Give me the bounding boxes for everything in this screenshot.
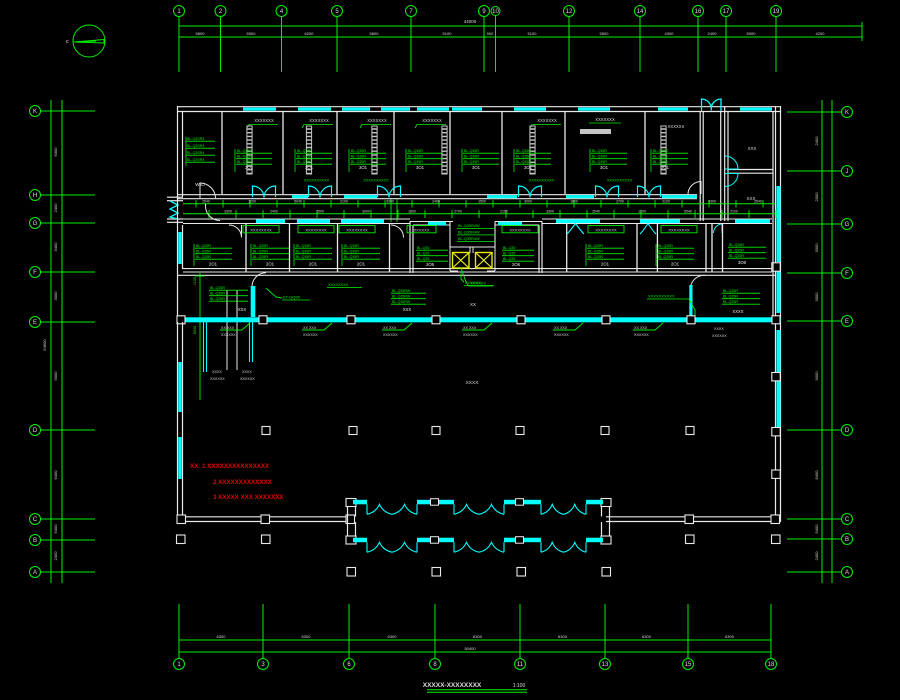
svg-text:2400: 2400 (53, 203, 58, 213)
svg-text:3300: 3300 (708, 200, 716, 204)
svg-text:44000: 44000 (464, 19, 477, 24)
svg-text:BL-Q35R: BL-Q35R (237, 155, 252, 159)
svg-text:4200: 4200 (816, 31, 826, 36)
svg-text:XXXXXX: XXXXXX (465, 280, 481, 285)
svg-text:2100: 2100 (662, 200, 670, 204)
svg-text:6300: 6300 (302, 634, 312, 639)
svg-text:3O8: 3O8 (738, 260, 747, 265)
svg-text:K: K (33, 109, 37, 115)
svg-text:1:100: 1:100 (513, 683, 526, 689)
svg-text:BL-Q35R: BL-Q35R (408, 160, 423, 164)
svg-text:XXXXXX: XXXXXX (210, 377, 225, 381)
svg-text:BL-Q35RW: BL-Q35RW (392, 295, 411, 299)
svg-text:A: A (845, 570, 849, 576)
svg-text:BL-Q35R: BL-Q35R (253, 255, 268, 259)
svg-text:1500: 1500 (478, 200, 486, 204)
svg-text:BL-Q35R: BL-Q35R (729, 254, 744, 258)
svg-text:12: 12 (566, 9, 573, 15)
svg-text:2700: 2700 (616, 200, 624, 204)
svg-text:BL-Q35R: BL-Q35R (253, 244, 268, 248)
svg-text:2100: 2100 (340, 200, 348, 204)
svg-text:3O1: 3O1 (472, 165, 481, 170)
svg-text:BL-Q35R: BL-Q35R (296, 255, 311, 259)
svg-text:BL-Q35R: BL-Q35R (464, 149, 479, 153)
svg-text:E: E (33, 320, 37, 326)
svg-text:10: 10 (492, 9, 499, 15)
svg-text:2540: 2540 (754, 200, 762, 204)
svg-text:3300: 3300 (386, 200, 394, 204)
svg-text:BL-Q35R: BL-Q35R (297, 149, 312, 153)
svg-text:XXXXXX: XXXXXX (668, 124, 685, 129)
svg-text:XXXXXX: XXXXXX (383, 333, 398, 337)
svg-text:3300: 3300 (546, 210, 554, 214)
svg-text:BL-Q35R: BL-Q35R (653, 160, 668, 164)
svg-text:BL-Q35R: BL-Q35R (344, 244, 359, 248)
svg-text:BL-Q35R: BL-Q35R (588, 255, 603, 259)
svg-text:XXXXXX: XXXXXX (240, 377, 255, 381)
svg-text:K: K (845, 110, 849, 116)
svg-text:2O1: 2O1 (671, 262, 680, 267)
svg-text:BL-Q35R: BL-Q35R (723, 289, 738, 293)
svg-text:XXXX: XXXX (212, 370, 222, 374)
svg-text:3000: 3000 (524, 200, 532, 204)
svg-text:11: 11 (517, 662, 524, 668)
svg-text:1100: 1100 (193, 277, 197, 285)
svg-text:17: 17 (723, 9, 730, 15)
svg-text:XXXXXXXXXX: XXXXXXXXXX (607, 179, 633, 183)
svg-text:3O1: 3O1 (600, 165, 609, 170)
svg-text:BL-Q35R: BL-Q35R (588, 244, 603, 248)
svg-text:BL-Q35R: BL-Q35R (253, 250, 268, 254)
svg-text:BL-Q35: BL-Q35 (503, 252, 515, 256)
svg-text:3O1: 3O1 (305, 165, 314, 170)
svg-text:5800: 5800 (370, 31, 380, 36)
svg-text:XXXXXXXXXX: XXXXXXXXXX (648, 294, 675, 299)
svg-text:BL-Q35: BL-Q35 (503, 257, 515, 261)
svg-text:BL-Q35R: BL-Q35R (588, 250, 603, 254)
svg-text:2O1: 2O1 (601, 262, 610, 267)
svg-text:BL-Q35R: BL-Q35R (210, 297, 225, 301)
svg-text:XX XXX: XX XXX (634, 326, 648, 330)
svg-text:F: F (845, 271, 849, 277)
svg-text:XXXXXX: XXXXXX (303, 333, 318, 337)
svg-text:BL-Q35R: BL-Q35R (592, 155, 607, 159)
svg-text:5000: 5000 (747, 31, 757, 36)
svg-text:2O1: 2O1 (357, 262, 366, 267)
svg-text:XX XXX: XX XXX (221, 326, 235, 330)
svg-text:1800: 1800 (408, 210, 416, 214)
svg-text:3O1: 3O1 (245, 165, 254, 170)
svg-text:BL-Q35R: BL-Q35R (351, 149, 366, 153)
svg-text:D: D (33, 428, 38, 434)
svg-text:XXXXXXX: XXXXXXX (537, 118, 557, 123)
svg-text:XX XXX: XX XXX (463, 326, 477, 330)
svg-text:XXXXXX: XXXXXX (221, 333, 236, 337)
svg-text:6300: 6300 (725, 634, 735, 639)
svg-text:6400: 6400 (53, 470, 58, 480)
svg-text:XXX: XXX (238, 307, 247, 312)
svg-text:2O5: 2O5 (426, 262, 435, 267)
svg-text:XXXXXX: XXXXXX (463, 333, 478, 337)
svg-text:6300: 6300 (217, 634, 227, 639)
svg-text:BL-Q35R: BL-Q35R (408, 149, 423, 153)
svg-text:XXXXXXXX: XXXXXXXX (328, 283, 349, 287)
svg-text:6500: 6500 (247, 31, 257, 36)
svg-text:2400: 2400 (53, 551, 58, 561)
svg-text:BL-Q35R: BL-Q35R (516, 160, 531, 164)
svg-text:2000: 2000 (814, 192, 819, 202)
svg-text:XXXX: XXXX (732, 309, 743, 314)
svg-text:BL-Q35RW: BL-Q35RW (392, 289, 411, 293)
svg-text:3300: 3300 (224, 210, 232, 214)
svg-text:18: 18 (768, 662, 775, 668)
svg-text:BL-Q35R: BL-Q35R (658, 250, 673, 254)
svg-text:50400: 50400 (464, 646, 476, 651)
svg-text:5800: 5800 (196, 31, 206, 36)
svg-text:BL-Q35R: BL-Q35R (351, 160, 366, 164)
svg-text:6300: 6300 (558, 634, 568, 639)
svg-text:F: F (33, 270, 37, 276)
svg-text:XXXX: XXXX (466, 380, 480, 386)
svg-text:3000: 3000 (362, 210, 370, 214)
svg-text:XX XXX: XX XXX (383, 326, 397, 330)
svg-text:2O1: 2O1 (309, 262, 318, 267)
svg-text:2540: 2540 (202, 200, 210, 204)
svg-text:D: D (845, 428, 850, 434)
svg-text:BL-Q35R: BL-Q35R (344, 250, 359, 254)
svg-text:2O1: 2O1 (266, 262, 275, 267)
svg-text:1800: 1800 (570, 200, 578, 204)
svg-text:3O1: 3O1 (661, 165, 670, 170)
svg-text:2400: 2400 (270, 210, 278, 214)
svg-text:XXXXX-XXXXXXXX: XXXXX-XXXXXXXX (423, 682, 482, 689)
svg-text:BL-Q35R: BL-Q35R (516, 149, 531, 153)
svg-text:BL-Q35: BL-Q35 (417, 246, 429, 250)
svg-text:XX XXX: XX XXX (303, 326, 317, 330)
svg-text:6400: 6400 (814, 470, 819, 480)
svg-text:6300: 6300 (473, 634, 483, 639)
svg-text:16: 16 (695, 9, 702, 15)
svg-text:BL-Q35R: BL-Q35R (516, 155, 531, 159)
svg-text:XXXXXXX: XXXXXXX (367, 118, 387, 123)
svg-text:BL-Q35RW: BL-Q35RW (392, 300, 411, 304)
svg-text:BL-Q35R: BL-Q35R (210, 286, 225, 290)
svg-text:BL-Q35R: BL-Q35R (723, 295, 738, 299)
svg-text:BL-Q35R: BL-Q35R (351, 155, 366, 159)
svg-text:XXXXXXXX: XXXXXXXX (509, 227, 531, 232)
svg-text:XXXXXXXX: XXXXXXXX (305, 227, 327, 232)
svg-text:C: C (33, 517, 38, 523)
svg-text:BL-Q35R: BL-Q35R (658, 244, 673, 248)
svg-text:G: G (845, 222, 850, 228)
svg-text:BL-Q35R: BL-Q35R (592, 149, 607, 153)
svg-text:54600: 54600 (42, 339, 47, 351)
svg-text:XXXXXXXXXX: XXXXXXXXXX (304, 179, 330, 183)
svg-text:XXXXXXXX: XXXXXXXX (595, 227, 617, 232)
svg-text:B: B (845, 537, 849, 543)
svg-text:BL-Q35R: BL-Q35R (297, 160, 312, 164)
svg-text:9000: 9000 (814, 371, 819, 381)
svg-text:XXXXXX: XXXXXX (634, 333, 649, 337)
svg-text:6200: 6200 (305, 31, 315, 36)
svg-text:BL-Q3SR4: BL-Q3SR4 (187, 151, 204, 155)
svg-text:2400: 2400 (432, 200, 440, 204)
svg-text:13: 13 (602, 662, 609, 668)
svg-text:XXXXXX: XXXXXX (413, 227, 429, 232)
svg-text:BL-Q35R: BL-Q35R (729, 249, 744, 253)
svg-text:3000: 3000 (53, 291, 58, 301)
svg-text:3000: 3000 (814, 292, 819, 302)
svg-text:XXXXXXXXXX: XXXXXXXXXX (363, 179, 389, 183)
svg-text:BL-Q35R: BL-Q35R (658, 255, 673, 259)
svg-text:900: 900 (487, 31, 494, 36)
svg-text:BL-Q35R: BL-Q35R (653, 155, 668, 159)
svg-text:XXX: XXX (403, 307, 412, 312)
svg-text:5500: 5500 (600, 31, 610, 36)
svg-text:ET-QQ95: ET-QQ95 (283, 295, 301, 300)
svg-text:BL-Q35R4W: BL-Q35R4W (458, 237, 480, 241)
svg-text:2400: 2400 (814, 136, 819, 146)
svg-text:BL-Q35: BL-Q35 (417, 252, 429, 256)
svg-text:5040: 5040 (193, 326, 197, 334)
svg-text:BL-Q35R: BL-Q35R (653, 149, 668, 153)
svg-text:BL-Q35R: BL-Q35R (592, 160, 607, 164)
svg-text:XXX: XXX (747, 146, 756, 151)
svg-text:B: B (33, 538, 37, 544)
svg-text:BL-Q35R: BL-Q35R (729, 243, 744, 247)
svg-text:5040: 5040 (684, 210, 692, 214)
svg-text:3400: 3400 (53, 242, 58, 252)
svg-text:BL-Q35R: BL-Q35R (196, 244, 211, 248)
svg-text:G: G (33, 221, 38, 227)
svg-text:5400: 5400 (814, 524, 819, 534)
svg-text:3 XXXXX XXX XXXXXXX: 3 XXXXX XXX XXXXXXX (213, 494, 284, 501)
svg-text:14: 14 (637, 9, 644, 15)
svg-text:6300: 6300 (388, 634, 398, 639)
svg-text:2540: 2540 (592, 210, 600, 214)
svg-text:BL-Q35R: BL-Q35R (296, 244, 311, 248)
svg-text:J: J (846, 169, 849, 175)
svg-text:5100: 5100 (528, 31, 538, 36)
svg-text:XXXXXXXXXX: XXXXXXXXXX (529, 179, 555, 183)
svg-text:19: 19 (773, 9, 780, 15)
svg-text:2 XXXXXXXXXXXXX: 2 XXXXXXXXXXXXX (213, 479, 273, 486)
svg-text:BL-Q35: BL-Q35 (503, 246, 515, 250)
svg-text:H: H (33, 193, 37, 199)
svg-text:XX: 1 XXXXXXXXXXXXXXX: XX: 1 XXXXXXXXXXXXXXX (190, 463, 270, 470)
svg-text:15: 15 (685, 662, 692, 668)
svg-text:BL-Q35R: BL-Q35R (464, 155, 479, 159)
svg-text:2400: 2400 (708, 31, 718, 36)
svg-text:2100: 2100 (500, 210, 508, 214)
svg-text:BL-Q35R: BL-Q35R (723, 300, 738, 304)
svg-text:XXXXXXXX: XXXXXXXX (346, 227, 368, 232)
svg-text:XX: XX (470, 302, 476, 307)
svg-text:3O1: 3O1 (359, 165, 368, 170)
svg-text:1200: 1200 (248, 200, 256, 204)
svg-text:BL-Q3SR4: BL-Q3SR4 (187, 158, 204, 162)
svg-text:XXXXXXX: XXXXXXX (422, 118, 442, 123)
svg-text:A: A (33, 570, 37, 576)
svg-text:BL-Q35R4W: BL-Q35R4W (458, 231, 480, 235)
svg-text:BL-Q35R: BL-Q35R (344, 255, 359, 259)
svg-text:3O1: 3O1 (524, 165, 533, 170)
svg-text:4300: 4300 (665, 31, 675, 36)
svg-text:BL-Q35R: BL-Q35R (297, 155, 312, 159)
svg-text:XX XXX: XX XXX (554, 326, 568, 330)
svg-text:BL-Q3SR4: BL-Q3SR4 (187, 144, 204, 148)
svg-text:2100: 2100 (730, 210, 738, 214)
svg-text:1200: 1200 (638, 210, 646, 214)
svg-text:3O1: 3O1 (416, 165, 425, 170)
svg-text:5040: 5040 (294, 200, 302, 204)
svg-text:2400: 2400 (814, 551, 819, 561)
svg-text:2700: 2700 (454, 210, 462, 214)
svg-text:XXXXXXXX: XXXXXXXX (250, 227, 272, 232)
svg-text:BL-Q35R: BL-Q35R (196, 255, 211, 259)
svg-text:XXXX: XXXX (242, 370, 252, 374)
svg-text:BL-Q35R: BL-Q35R (196, 250, 211, 254)
svg-text:BL-Q35R: BL-Q35R (296, 250, 311, 254)
svg-text:BL-Q35R: BL-Q35R (408, 155, 423, 159)
svg-text:1500: 1500 (316, 210, 324, 214)
svg-text:E: E (845, 319, 849, 325)
svg-text:5100: 5100 (443, 31, 453, 36)
svg-text:5400: 5400 (53, 524, 58, 534)
svg-text:3300: 3300 (814, 243, 819, 253)
svg-text:2O1: 2O1 (209, 262, 218, 267)
svg-text:2O6: 2O6 (512, 262, 521, 267)
svg-text:9000: 9000 (53, 371, 58, 381)
svg-text:BL-Q35R: BL-Q35R (237, 149, 252, 153)
svg-text:BL-Q3SR4: BL-Q3SR4 (187, 137, 204, 141)
svg-text:BL-Q35R: BL-Q35R (464, 160, 479, 164)
svg-text:XXXXXXX: XXXXXXX (254, 118, 274, 123)
svg-text:XXXXXX: XXXXXX (554, 333, 569, 337)
svg-text:XXXXXXX: XXXXXXX (309, 118, 329, 123)
svg-text:XXXXXXX: XXXXXXX (595, 117, 615, 122)
svg-text:6300: 6300 (642, 634, 652, 639)
svg-text:BL-Q35: BL-Q35 (417, 257, 429, 261)
svg-text:BL-Q35R4W: BL-Q35R4W (458, 224, 480, 228)
svg-text:6300: 6300 (53, 147, 58, 157)
svg-text:XXXXXXXX: XXXXXXXX (668, 227, 690, 232)
svg-text:C: C (845, 517, 850, 523)
svg-text:XXXXXX: XXXXXX (712, 334, 727, 338)
svg-text:XXXX: XXXX (714, 327, 724, 331)
svg-text:BL-Q35R: BL-Q35R (210, 292, 225, 296)
svg-text:BL-Q35R: BL-Q35R (237, 160, 252, 164)
